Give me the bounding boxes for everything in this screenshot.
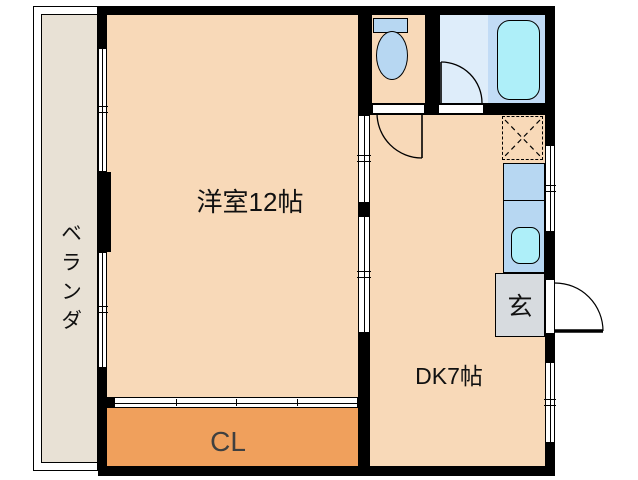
floor-plan-canvas: 玄 [0, 0, 638, 480]
balcony-label: ベランダ [50, 205, 90, 355]
kitchen-window [545, 145, 555, 232]
wall-wc-left [358, 15, 372, 103]
entrance-label: 玄 [507, 287, 532, 323]
wall-wc-bath-divider [425, 15, 440, 103]
wall-right-4 [545, 443, 555, 476]
bathtub-fixture [497, 20, 540, 100]
wall-right-3 [545, 333, 555, 362]
entry-door-arc [555, 283, 603, 331]
wall-top [98, 6, 555, 15]
wall-left-middle [98, 172, 111, 252]
wall-mid-post [358, 203, 370, 216]
bath-door-sill [438, 104, 484, 114]
wc-door-sill [372, 104, 425, 114]
room-dk-partition-upper [358, 115, 370, 203]
entrance-floor: 玄 [495, 273, 545, 337]
entry-door-opening [545, 280, 555, 333]
dk-label: DK7帖 [389, 362, 509, 390]
kitchen-sink-fixture [511, 227, 540, 264]
wall-left-lower [98, 368, 107, 476]
closet-label: CL [178, 427, 278, 457]
wall-left-upper [98, 6, 107, 48]
wall-right-1 [545, 6, 555, 145]
dk-window [545, 362, 555, 443]
kitchen-counter [503, 163, 545, 273]
wall-right-2 [545, 232, 555, 280]
refrigerator-space-dashed [502, 116, 543, 160]
balcony-window-upper [98, 48, 107, 172]
toilet-bowl [376, 31, 408, 80]
wall-room-dk-lower [358, 333, 370, 466]
balcony-window-lower [98, 252, 107, 368]
wall-bottom [98, 466, 555, 476]
counter-divider [504, 200, 544, 201]
western-room-label: 洋室12帖 [150, 187, 350, 217]
room-dk-partition-lower [358, 216, 370, 333]
closet-sliding-door [114, 397, 358, 408]
